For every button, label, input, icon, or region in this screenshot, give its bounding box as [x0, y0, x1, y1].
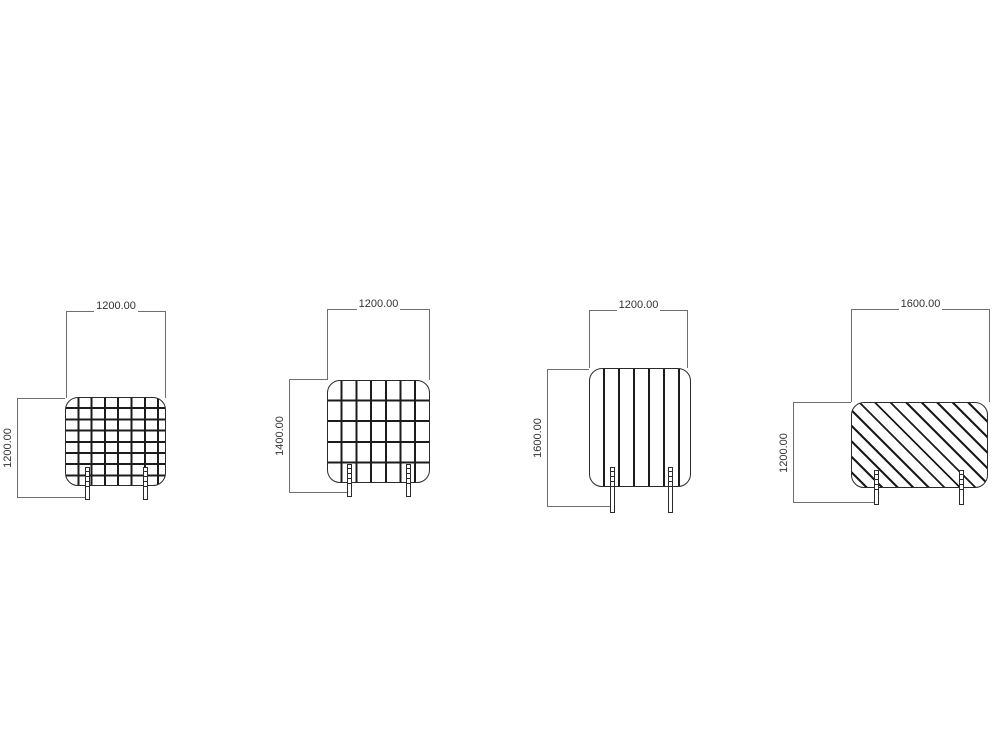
width-dimension-label: 1200.00 [66, 300, 166, 312]
extension-line-left [589, 310, 590, 368]
extension-line-top [793, 402, 851, 403]
extension-line-right [687, 310, 688, 368]
extension-line-top [17, 398, 65, 399]
dimension-line [793, 402, 794, 503]
dimension-line [17, 398, 18, 498]
extension-line-bottom [793, 502, 874, 503]
extension-line-left [851, 309, 852, 402]
width-dimension-label: 1600.00 [851, 298, 990, 310]
width-dimension-label: 1200.00 [327, 298, 430, 310]
panel-foot-right [668, 467, 673, 513]
extension-line-bottom [17, 497, 85, 498]
width-dimension-label: 1200.00 [589, 299, 688, 311]
panel-face-square-mesh [65, 397, 166, 486]
extension-line-right [429, 309, 430, 380]
extension-line-top [547, 369, 589, 370]
extension-line-right [165, 311, 166, 398]
panel-foot-right [959, 470, 964, 505]
panel-foot-right [406, 464, 411, 497]
dimension-line [547, 369, 548, 507]
panel-foot-left [85, 467, 90, 500]
extension-line-left [327, 309, 328, 380]
panel-foot-left [874, 470, 879, 505]
height-dimension-label: 1200.00 [777, 402, 791, 503]
panel-face-diagonal-hatch [851, 402, 988, 488]
extension-line-left [66, 311, 67, 398]
extension-line-top [289, 379, 327, 380]
extension-line-right [989, 309, 990, 402]
height-dimension-label: 1600.00 [531, 369, 545, 507]
panel-face-vertical-slats [589, 368, 691, 487]
panel-drawing-4: 1600.00 1200.00 [0, 0, 1000, 755]
panel-foot-left [610, 467, 615, 513]
extension-line-bottom [547, 506, 610, 507]
height-dimension-label: 1400.00 [273, 379, 287, 493]
panel-foot-left [347, 464, 352, 497]
dimension-line [289, 379, 290, 493]
panel-foot-right [143, 467, 148, 500]
height-dimension-label: 1200.00 [1, 398, 15, 498]
extension-line-bottom [289, 492, 347, 493]
panel-face-wide-mesh [327, 380, 430, 483]
cad-drawing-canvas: 1200.00 1200.00 1200.00 1400.00 [0, 0, 1000, 755]
